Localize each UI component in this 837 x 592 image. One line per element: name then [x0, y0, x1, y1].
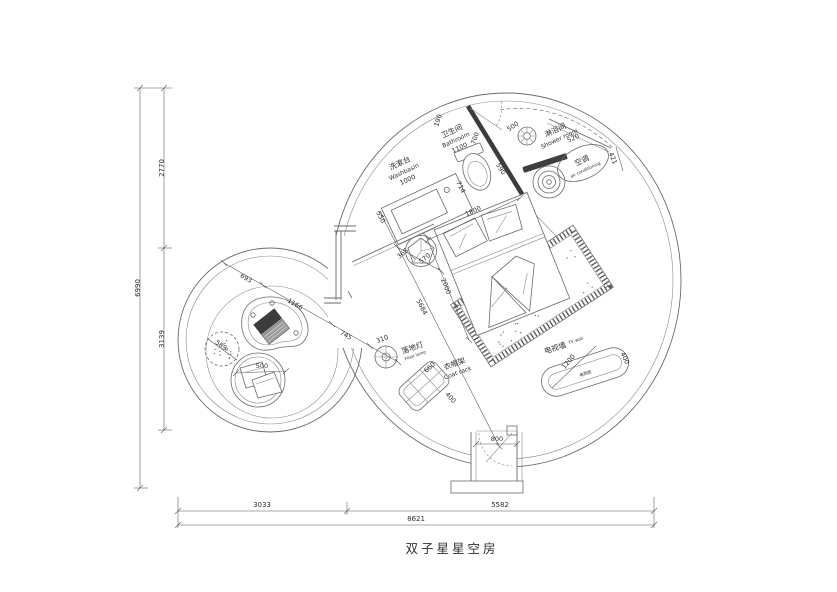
washbasin-label: 洗漱台 Washbasin 1000	[383, 151, 424, 190]
faucet	[443, 186, 450, 193]
dim-ac-depth: 421	[607, 151, 619, 166]
dim-bed-length: 2000	[439, 277, 453, 295]
svg-text:TV wall: TV wall	[567, 336, 584, 346]
dim-shower-door: 500	[505, 120, 520, 134]
dim-wall-top: 190	[432, 113, 443, 127]
shower-head-icon	[518, 127, 536, 145]
dim-door: 800	[491, 435, 503, 443]
floor-lamp	[374, 345, 398, 369]
dim-bottom-left: 3033	[253, 501, 271, 509]
shower-door-arc	[496, 101, 502, 126]
dim-lamp: 310	[375, 333, 389, 345]
dim-toilet: 714	[454, 180, 467, 195]
dim-coat-d: 400	[443, 390, 457, 405]
dim-tv-d: 400	[619, 351, 632, 366]
dim-chair: 500	[256, 362, 268, 370]
dim-room-diag: 5684	[414, 298, 429, 316]
shower-screen	[522, 153, 568, 173]
bathroom-label: 卫生间 Bathroom 1100	[436, 120, 475, 158]
tv-cabinet-label: 电视柜	[578, 368, 592, 379]
shower-label: 淋浴间 Shower room	[535, 117, 579, 151]
dim-left-lower: 3139	[158, 330, 166, 348]
svg-text:电视墙: 电视墙	[543, 339, 568, 356]
overall-dimensions: 6990 2770 3139 3033 5582 8621	[134, 85, 657, 528]
coat-rack-label: 衣帽架 Coat rack	[439, 354, 473, 382]
bed	[434, 192, 569, 335]
basin	[391, 189, 447, 234]
floor-lamp-label: 落地灯 Floor lamp	[400, 339, 427, 362]
ceiling-fan-icon	[533, 166, 565, 198]
floor-plan-page: 空调 air conditioning 电视柜	[0, 0, 837, 592]
door-hinge-block	[507, 426, 517, 435]
dim-lc-b: 1166	[286, 297, 304, 312]
drawing-title: 双子星星空房	[405, 541, 498, 556]
laptop	[254, 309, 290, 345]
dim-tv-w: 1200	[560, 353, 577, 371]
dim-bottom-total: 8621	[407, 515, 425, 523]
entry-opening	[471, 452, 517, 472]
tv-wall-label: 电视墙 TV wall	[543, 334, 585, 356]
entry-step	[451, 481, 523, 493]
dim-left-total: 6990	[134, 279, 142, 297]
dim-left-upper: 2770	[158, 159, 166, 177]
dim-lc-a: 693	[239, 272, 254, 285]
floor-plan-drawing: 空调 air conditioning 电视柜	[0, 0, 837, 592]
dim-bottom-right: 5582	[491, 501, 509, 509]
